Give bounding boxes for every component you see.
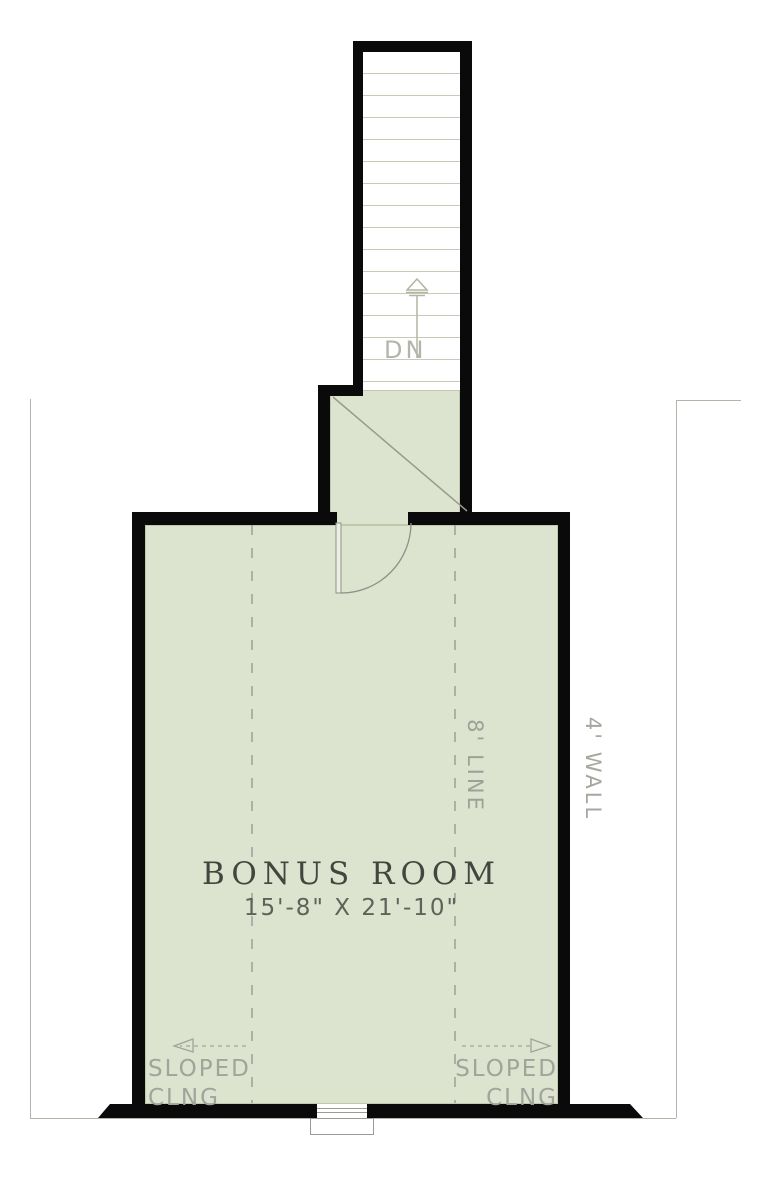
door-leaf: [336, 523, 341, 593]
four-ft-wall-label: 4' WALL: [579, 709, 605, 829]
sloped-ceiling-arrow-left-icon: [174, 1039, 246, 1052]
floor-plan: DN BONUS ROOM 15'-8" X 21'-10" 8' LINE 4…: [0, 0, 760, 1188]
sloped-ceiling-arrow-right-icon: [462, 1039, 550, 1052]
sloped-ceiling-left-line1: SLOPED: [148, 1055, 251, 1084]
room-text-block: BONUS ROOM 15'-8" X 21'-10": [145, 856, 558, 921]
room-name: BONUS ROOM: [145, 856, 558, 892]
door-swing-arc: [341, 523, 411, 593]
sloped-ceiling-label-left: SLOPED CLNG: [148, 1055, 251, 1113]
sloped-ceiling-right-line2: CLNG: [446, 1084, 558, 1113]
stair-down-label: DN: [384, 336, 426, 364]
sloped-ceiling-right-line1: SLOPED: [446, 1055, 558, 1084]
room-dimensions: 15'-8" X 21'-10": [145, 895, 558, 921]
landing-diagonal-line: [333, 397, 467, 511]
eight-ft-line-label: 8' LINE: [461, 706, 487, 826]
sloped-ceiling-label-right: SLOPED CLNG: [446, 1055, 558, 1113]
plan-linework: [0, 0, 760, 1188]
sloped-ceiling-left-line2: CLNG: [148, 1084, 251, 1113]
